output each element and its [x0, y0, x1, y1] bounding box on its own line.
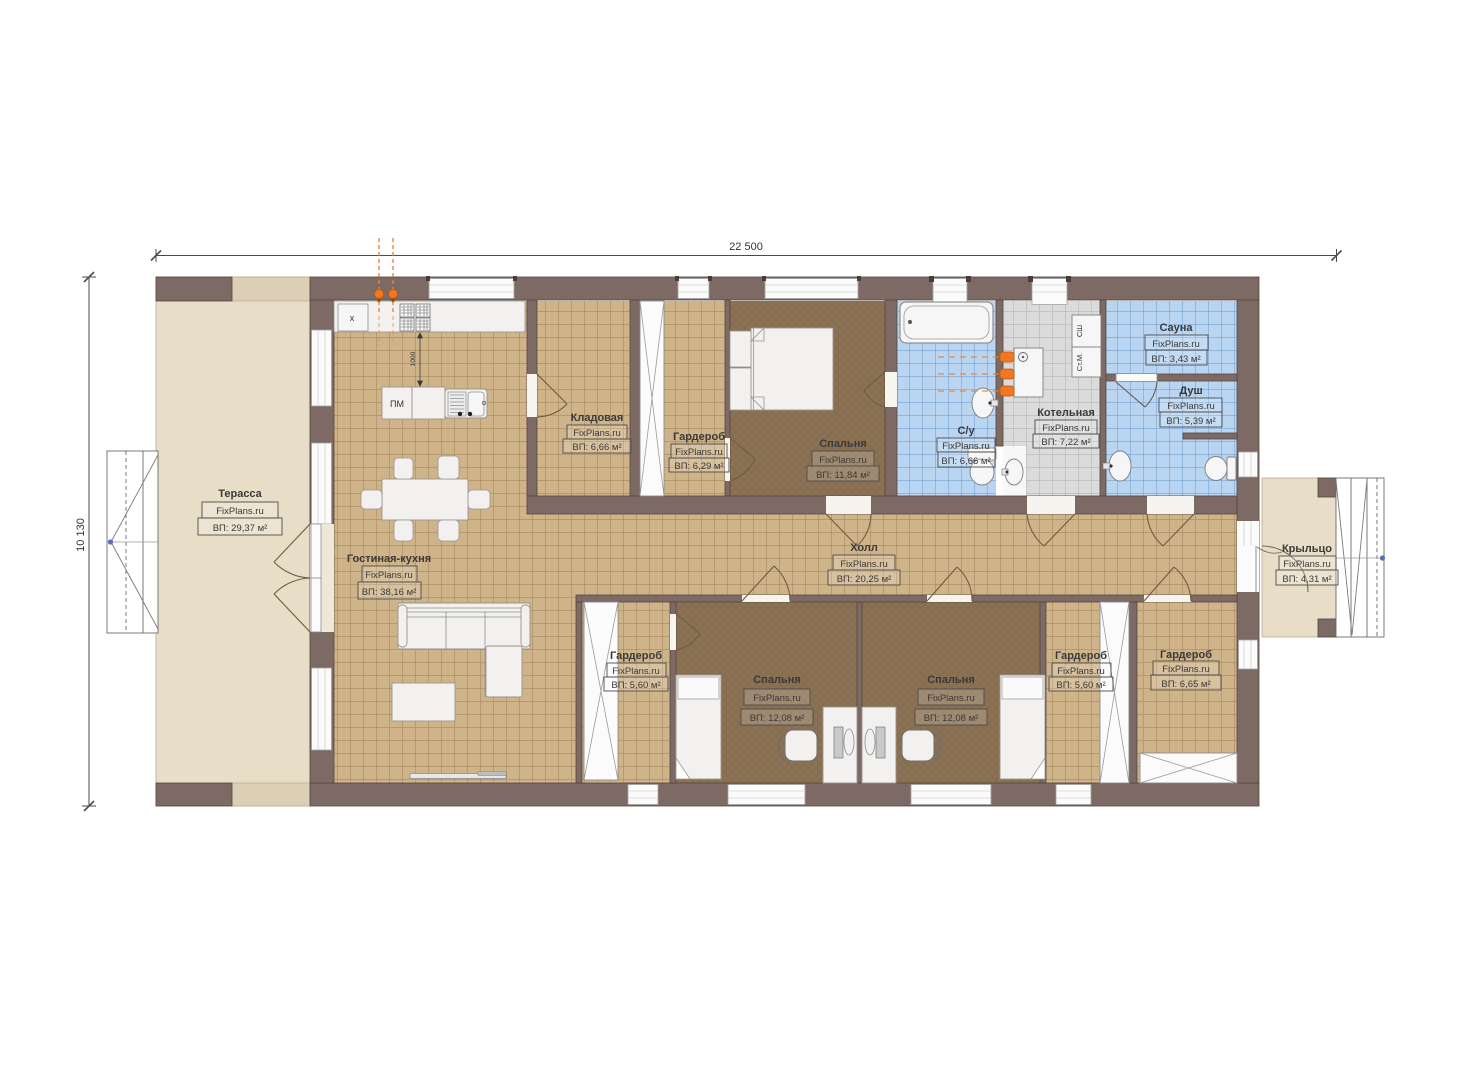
svg-text:FixPlans.ru: FixPlans.ru [675, 447, 723, 458]
svg-text:Гардероб: Гардероб [673, 431, 725, 443]
svg-text:ПМ: ПМ [390, 399, 404, 409]
svg-text:Кладовая: Кладовая [571, 412, 624, 424]
svg-text:ВП: 3,43 м²: ВП: 3,43 м² [1151, 354, 1200, 365]
svg-text:FixPlans.ru: FixPlans.ru [1042, 423, 1090, 434]
svg-text:ВП: 12,08 м²: ВП: 12,08 м² [924, 713, 979, 724]
svg-text:ВП: 6,29 м²: ВП: 6,29 м² [674, 461, 723, 472]
svg-text:ВП: 5,39 м²: ВП: 5,39 м² [1166, 416, 1215, 427]
svg-text:FixPlans.ru: FixPlans.ru [942, 441, 990, 452]
svg-text:FixPlans.ru: FixPlans.ru [1162, 664, 1210, 675]
svg-text:Спальня: Спальня [927, 674, 975, 686]
svg-text:Терасса: Терасса [218, 488, 262, 500]
svg-text:Душ: Душ [1179, 385, 1202, 397]
svg-text:FixPlans.ru: FixPlans.ru [1057, 666, 1105, 677]
svg-text:ВП: 29,37 м²: ВП: 29,37 м² [213, 523, 268, 534]
svg-text:FixPlans.ru: FixPlans.ru [1283, 559, 1331, 570]
svg-text:Гардероб: Гардероб [610, 650, 662, 662]
svg-text:FixPlans.ru: FixPlans.ru [365, 570, 413, 581]
svg-text:ВП: 38,16 м²: ВП: 38,16 м² [362, 587, 417, 598]
svg-text:ВП: 5,60 м²: ВП: 5,60 м² [1056, 680, 1105, 691]
svg-text:ВП: 4,31 м²: ВП: 4,31 м² [1282, 574, 1331, 585]
svg-text:FixPlans.ru: FixPlans.ru [753, 693, 801, 704]
svg-text:FixPlans.ru: FixPlans.ru [573, 428, 621, 439]
svg-text:x: x [350, 313, 355, 323]
svg-text:10 130: 10 130 [75, 518, 87, 552]
svg-text:FixPlans.ru: FixPlans.ru [1152, 339, 1200, 350]
svg-text:Гардероб: Гардероб [1055, 650, 1107, 662]
svg-text:22 500: 22 500 [729, 241, 763, 253]
svg-text:Холл: Холл [850, 542, 878, 554]
svg-text:ВП: 20,25 м²: ВП: 20,25 м² [837, 574, 892, 585]
svg-text:FixPlans.ru: FixPlans.ru [1167, 401, 1215, 412]
svg-text:Котельная: Котельная [1037, 407, 1095, 419]
svg-text:Спальня: Спальня [819, 438, 867, 450]
svg-text:FixPlans.ru: FixPlans.ru [612, 666, 660, 677]
svg-text:ВП: 6,65 м²: ВП: 6,65 м² [1161, 679, 1210, 690]
svg-text:ВП: 11,84 м²: ВП: 11,84 м² [816, 470, 870, 481]
svg-text:ВП: 7,22 м²: ВП: 7,22 м² [1041, 437, 1090, 448]
svg-text:FixPlans.ru: FixPlans.ru [927, 693, 975, 704]
svg-text:С/у: С/у [957, 425, 975, 437]
svg-text:ВП: 12,08 м²: ВП: 12,08 м² [750, 713, 805, 724]
svg-text:СШ: СШ [1075, 325, 1084, 337]
svg-text:Спальня: Спальня [753, 674, 801, 686]
svg-text:Гостиная-кухня: Гостиная-кухня [347, 553, 431, 565]
svg-text:Сауна: Сауна [1159, 322, 1193, 334]
svg-text:ВП: 6,66 м²: ВП: 6,66 м² [572, 442, 621, 453]
svg-text:FixPlans.ru: FixPlans.ru [216, 506, 264, 517]
svg-text:Ст.М.: Ст.М. [1075, 353, 1084, 371]
svg-text:ВП: 5,60 м²: ВП: 5,60 м² [611, 680, 660, 691]
svg-text:Крыльцо: Крыльцо [1282, 543, 1332, 555]
svg-text:Гардероб: Гардероб [1160, 649, 1212, 661]
svg-text:1000: 1000 [410, 351, 417, 366]
svg-text:ВП: 6,66 м²: ВП: 6,66 м² [941, 456, 990, 467]
svg-text:FixPlans.ru: FixPlans.ru [840, 559, 888, 570]
svg-text:FixPlans.ru: FixPlans.ru [819, 455, 867, 466]
